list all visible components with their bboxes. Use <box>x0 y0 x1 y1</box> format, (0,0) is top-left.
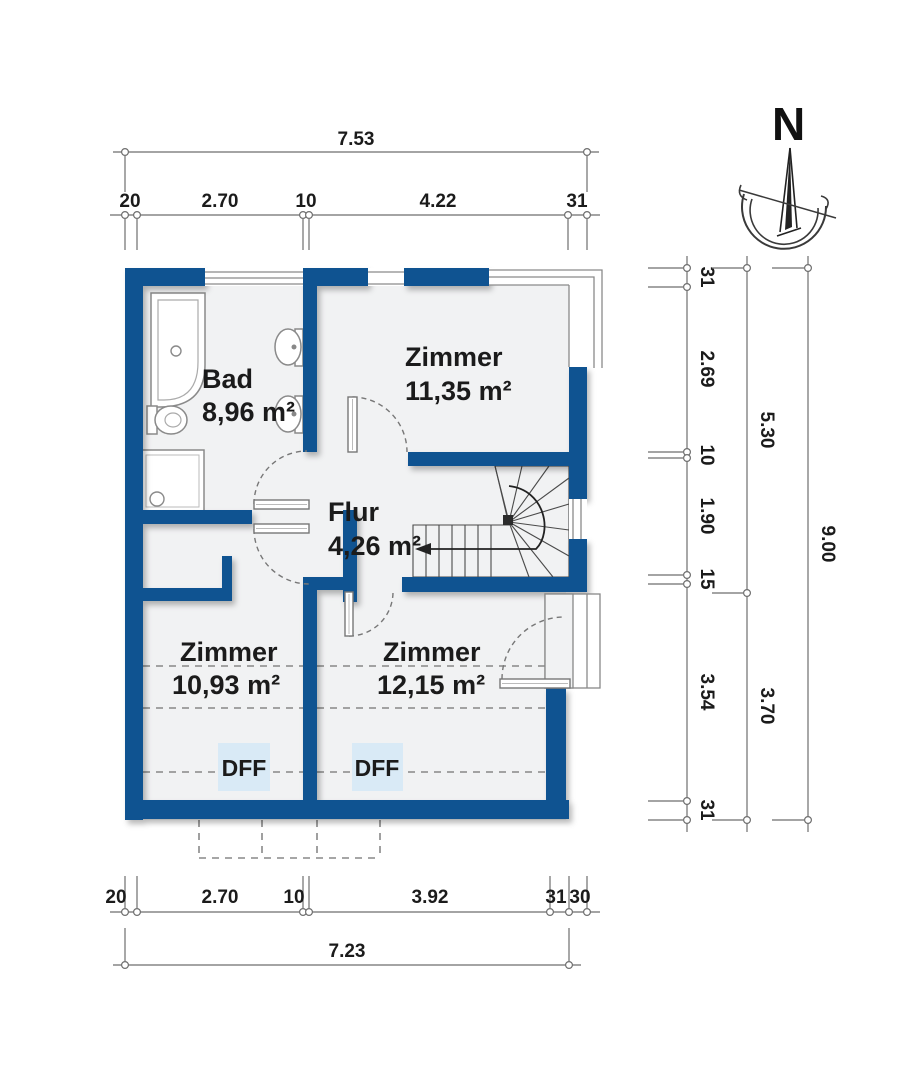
compass-needle-icon <box>739 148 836 249</box>
dim-right-2: 10 <box>696 444 717 465</box>
dimension-right: 31 2.69 10 1.90 15 3.54 31 5.30 3.70 9.0… <box>648 256 838 832</box>
room-label-se-area: 12,15 m² <box>377 670 485 700</box>
dim-bottom-2: 10 <box>283 887 304 908</box>
compass-north-label: N <box>772 98 805 150</box>
wall-right-a <box>569 367 587 499</box>
stair-newel <box>503 515 513 525</box>
roof-outline-dashed-boxes <box>199 820 380 858</box>
window-top-bad <box>205 268 303 286</box>
room-label-bad-area: 8,96 m² <box>202 397 295 427</box>
wall-top-b <box>303 268 368 286</box>
room-label-bad-name: Bad <box>202 364 253 394</box>
wall-right-c <box>546 688 566 801</box>
dim-right-4: 15 <box>696 568 717 590</box>
wall-left <box>125 268 143 820</box>
window-right-stairs <box>569 499 587 539</box>
bathtub-icon <box>151 293 205 407</box>
dim-right-6: 31 <box>696 799 717 821</box>
dim-top-2: 10 <box>295 191 316 212</box>
dim-bottom-overall: 7.23 <box>329 941 366 962</box>
dim-bottom-3: 3.92 <box>412 887 449 908</box>
dim-right-overall: 9.00 <box>817 526 838 563</box>
wall-stairs-top <box>408 452 569 466</box>
dimension-top: 7.53 20 2.70 10 4.22 31 <box>110 129 600 250</box>
toilet-icon <box>147 406 187 434</box>
room-label-ne-area: 11,35 m² <box>405 376 512 406</box>
dim-right-0: 31 <box>696 266 717 288</box>
room-label-sw-name: Zimmer <box>180 637 278 667</box>
dim-bottom-1: 2.70 <box>202 887 239 908</box>
dim-right-mid-0: 5.30 <box>756 412 777 449</box>
dim-bottom-0: 20 <box>105 887 126 908</box>
floorplan-page: DFF DFF <box>0 0 914 1080</box>
wall-sw-stub-h <box>137 588 232 601</box>
wall-stub-se <box>317 577 345 590</box>
window-top-small <box>368 268 404 286</box>
dim-right-5: 3.54 <box>696 674 717 711</box>
dim-bottom-5: 30 <box>569 887 590 908</box>
dim-top-1: 2.70 <box>202 191 239 212</box>
wall-sw-stub-v <box>222 556 232 601</box>
dim-right-1: 2.69 <box>696 351 717 388</box>
shower-icon <box>141 450 204 512</box>
dim-right-3: 1.90 <box>696 498 717 535</box>
wall-bad-divider <box>303 286 317 452</box>
wall-bad-bottom <box>125 510 252 524</box>
dim-top-overall: 7.53 <box>338 129 375 150</box>
dim-top-3: 4.22 <box>420 191 457 212</box>
dim-right-mid-1: 3.70 <box>756 688 777 725</box>
wall-stairs-bottom <box>402 577 575 592</box>
compass: N <box>739 98 836 249</box>
dff-label-left: DFF <box>222 755 267 781</box>
room-label-ne-name: Zimmer <box>405 342 503 372</box>
niche-se <box>545 594 600 688</box>
dim-top-0: 20 <box>119 191 140 212</box>
floor-plan-svg: DFF DFF <box>0 0 914 1080</box>
room-label-se-name: Zimmer <box>383 637 481 667</box>
wall-rooms-divider <box>303 577 317 801</box>
dff-label-right: DFF <box>355 755 400 781</box>
dim-top-4: 31 <box>566 191 588 212</box>
room-label-flur-area: 4,26 m² <box>328 531 421 561</box>
room-label-sw-area: 10,93 m² <box>172 670 280 700</box>
dimension-bottom: 20 2.70 10 3.92 31 30 7.23 <box>105 876 600 968</box>
wall-top-c <box>404 268 489 286</box>
wall-bottom <box>125 800 569 819</box>
room-label-flur-name: Flur <box>328 497 379 527</box>
sink-icon-top <box>275 329 303 366</box>
dim-bottom-4: 31 <box>545 887 567 908</box>
wall-top-a <box>125 268 205 286</box>
